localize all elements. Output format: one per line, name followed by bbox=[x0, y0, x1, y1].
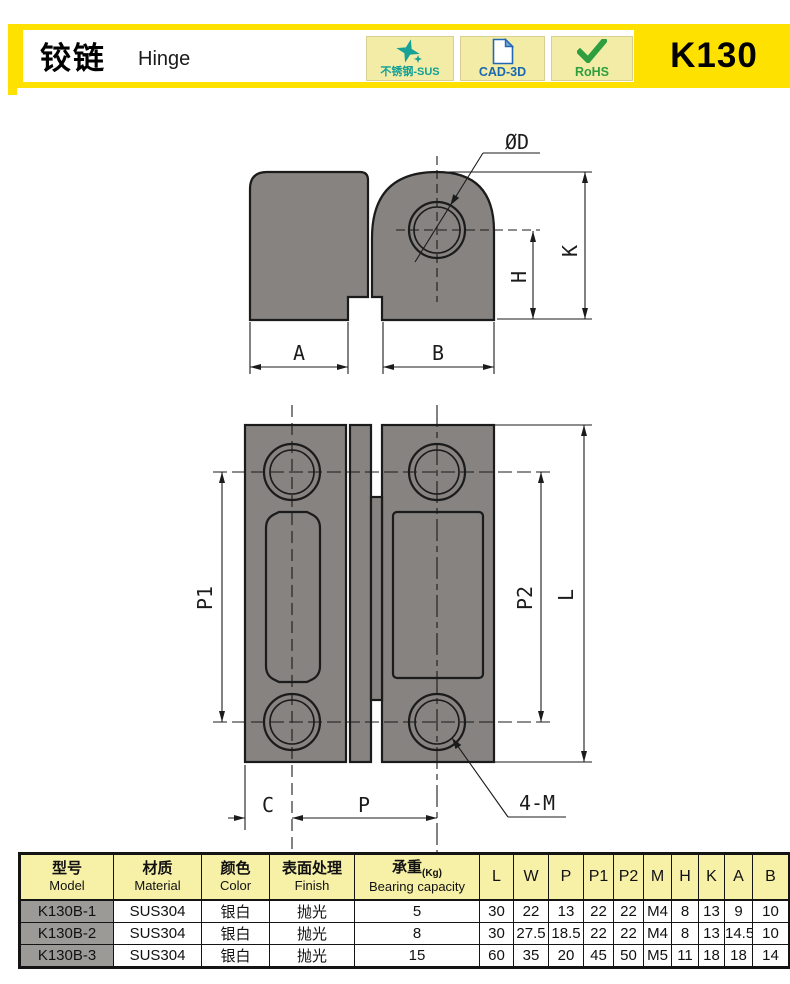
dim-label-thread: 4-M bbox=[519, 791, 555, 815]
front-view-drawing: P1 P2 L C P 4-M bbox=[193, 405, 592, 857]
dim-label-l: L bbox=[554, 589, 578, 601]
spec-cell: 11 bbox=[672, 945, 699, 968]
side-view-right-leaf bbox=[372, 172, 494, 320]
col-header-B: B bbox=[753, 854, 790, 901]
model-cell: K130B-2 bbox=[20, 923, 114, 945]
front-view-hinge-edge-strip bbox=[350, 425, 371, 762]
model-cell: K130B-1 bbox=[20, 900, 114, 923]
dim-label-p1: P1 bbox=[193, 586, 217, 610]
dim-label-a: A bbox=[293, 341, 305, 365]
spec-cell: 45 bbox=[584, 945, 614, 968]
spec-cell: 5 bbox=[355, 900, 480, 923]
spec-cell: SUS304 bbox=[114, 923, 202, 945]
dim-label-b: B bbox=[432, 341, 444, 365]
left-plate-slot bbox=[266, 512, 320, 682]
catalog-page: 铰链 Hinge 不锈钢-SUS CAD-3D bbox=[0, 0, 790, 984]
spec-cell: 14.5 bbox=[725, 923, 753, 945]
spec-cell: 抛光 bbox=[270, 923, 355, 945]
spec-cell: 30 bbox=[480, 923, 514, 945]
spec-cell: 50 bbox=[614, 945, 644, 968]
spec-cell: 18 bbox=[699, 945, 725, 968]
spec-cell: SUS304 bbox=[114, 900, 202, 923]
spec-cell: 抛光 bbox=[270, 945, 355, 968]
spec-cell: 22 bbox=[584, 923, 614, 945]
spec-cell: 18 bbox=[725, 945, 753, 968]
spec-cell: 22 bbox=[514, 900, 549, 923]
spec-cell: 15 bbox=[355, 945, 480, 968]
spec-cell: 13 bbox=[699, 923, 725, 945]
right-plate-pocket bbox=[393, 512, 483, 678]
spec-cell: 13 bbox=[549, 900, 584, 923]
spec-cell: 20 bbox=[549, 945, 584, 968]
dim-label-k: K bbox=[558, 245, 582, 257]
spec-cell: 13 bbox=[699, 900, 725, 923]
spec-cell: 30 bbox=[480, 900, 514, 923]
spec-cell: 银白 bbox=[202, 923, 270, 945]
model-cell: K130B-3 bbox=[20, 945, 114, 968]
col-header-K: K bbox=[699, 854, 725, 901]
spec-cell: M4 bbox=[644, 900, 672, 923]
spec-cell: M5 bbox=[644, 945, 672, 968]
spec-cell: 10 bbox=[753, 900, 790, 923]
table-row: K130B-2SUS304银白抛光83027.518.52222M481314.… bbox=[20, 923, 790, 945]
spec-cell: 8 bbox=[672, 923, 699, 945]
spec-cell: 18.5 bbox=[549, 923, 584, 945]
spec-cell: 10 bbox=[753, 923, 790, 945]
spec-cell: M4 bbox=[644, 923, 672, 945]
spec-table-header-row: 型号Model 材质Material 颜色Color 表面处理Finish 承重… bbox=[20, 854, 790, 901]
spec-cell: 8 bbox=[355, 923, 480, 945]
dim-label-c: C bbox=[262, 793, 274, 817]
side-view-drawing: ØD K H A bbox=[250, 130, 592, 374]
col-header-color: 颜色Color bbox=[202, 854, 270, 901]
col-header-L: L bbox=[480, 854, 514, 901]
spec-cell: 银白 bbox=[202, 945, 270, 968]
spec-cell: 22 bbox=[584, 900, 614, 923]
spec-cell: SUS304 bbox=[114, 945, 202, 968]
col-header-model: 型号Model bbox=[20, 854, 114, 901]
spec-cell: 22 bbox=[614, 900, 644, 923]
dim-label-p2: P2 bbox=[513, 586, 537, 610]
spec-cell: 银白 bbox=[202, 900, 270, 923]
col-header-P1: P1 bbox=[584, 854, 614, 901]
spec-table-body: K130B-1SUS304银白抛光53022132222M4813910K130… bbox=[20, 900, 790, 968]
dim-label-p: P bbox=[358, 793, 370, 817]
col-header-W: W bbox=[514, 854, 549, 901]
col-header-material: 材质Material bbox=[114, 854, 202, 901]
front-view-knuckle-bridge bbox=[371, 497, 382, 700]
spec-cell: 8 bbox=[672, 900, 699, 923]
col-header-H: H bbox=[672, 854, 699, 901]
side-view-left-leaf bbox=[250, 172, 368, 320]
spec-cell: 22 bbox=[614, 923, 644, 945]
dim-label-h: H bbox=[507, 271, 531, 283]
spec-cell: 27.5 bbox=[514, 923, 549, 945]
col-header-P: P bbox=[549, 854, 584, 901]
spec-cell: 9 bbox=[725, 900, 753, 923]
col-header-P2: P2 bbox=[614, 854, 644, 901]
technical-drawings: ØD K H A bbox=[0, 0, 790, 984]
dim-label-diameter: ØD bbox=[505, 130, 529, 154]
table-row: K130B-3SUS304银白抛光156035204550M511181814 bbox=[20, 945, 790, 968]
col-header-M: M bbox=[644, 854, 672, 901]
col-header-finish: 表面处理Finish bbox=[270, 854, 355, 901]
spec-cell: 35 bbox=[514, 945, 549, 968]
spec-cell: 14 bbox=[753, 945, 790, 968]
col-header-capacity: 承重(Kg) Bearing capacity bbox=[355, 854, 480, 901]
spec-cell: 抛光 bbox=[270, 900, 355, 923]
spec-cell: 60 bbox=[480, 945, 514, 968]
spec-table: 型号Model 材质Material 颜色Color 表面处理Finish 承重… bbox=[18, 852, 790, 969]
table-row: K130B-1SUS304银白抛光53022132222M4813910 bbox=[20, 900, 790, 923]
col-header-A: A bbox=[725, 854, 753, 901]
